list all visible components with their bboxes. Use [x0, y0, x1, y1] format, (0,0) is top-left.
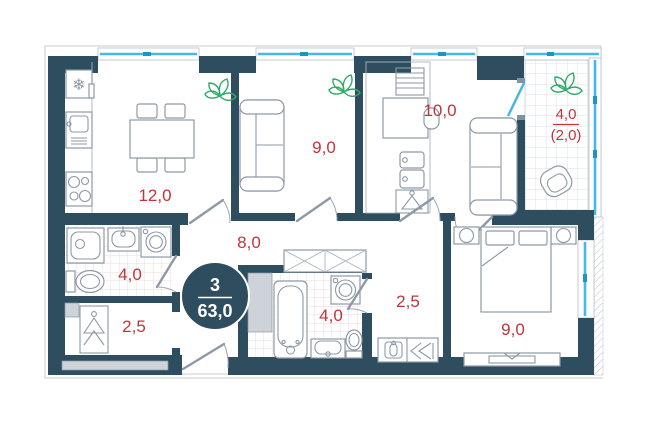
fridge-snowflake-icon: ❄: [72, 75, 85, 94]
wardrobe-hanger-icon: [80, 306, 108, 353]
toilet: [66, 271, 104, 293]
double-bed: [481, 227, 551, 312]
washing-machine: [141, 227, 171, 257]
toilet-2: [346, 330, 362, 358]
hall-closet: [284, 250, 366, 272]
floorplan-image: ❄ 12,0 9,0: [0, 0, 652, 425]
shaft-niche: [248, 273, 272, 332]
badge-total-area: 63,0: [197, 301, 232, 321]
bathtub: [274, 281, 307, 358]
area-label-bedroom: 9,0: [501, 320, 525, 339]
sofa: [240, 100, 284, 191]
area-label-kitchen: 12,0: [138, 186, 171, 205]
nightstand-left: [454, 227, 479, 244]
hanger-icon: [396, 190, 428, 213]
exterior-hatch-band: [594, 217, 603, 375]
hall-right: 2,5: [378, 292, 438, 362]
dresser: [464, 353, 560, 366]
shower: [67, 228, 104, 263]
area-label-balcony: 4,0: [556, 106, 577, 123]
room-living: 9,0: [240, 75, 360, 221]
washbasin-2: [311, 339, 345, 358]
wardrobe-room: 2,5: [65, 303, 146, 353]
washbasin: [108, 226, 139, 251]
stove: [66, 172, 92, 206]
area-label-hall-right: 2,5: [396, 292, 420, 311]
room-top: 10,0: [366, 62, 525, 221]
summary-badge: 3 63,0: [181, 262, 249, 330]
drawers: [400, 152, 424, 188]
badge-rooms-count: 3: [210, 275, 220, 295]
wall-niche: [62, 361, 168, 370]
bedroom: 9,0: [454, 227, 576, 366]
dining-table: [130, 104, 194, 172]
area-label-living: 9,0: [312, 138, 336, 157]
area-label-hallway: 8,0: [237, 233, 261, 252]
balcony-door: [508, 78, 525, 120]
area-label-room-top: 10,0: [423, 101, 456, 120]
hall-cabinet: [378, 338, 438, 362]
entrance-door: [182, 344, 228, 374]
kitchen-door: [190, 200, 230, 223]
area-label-bathroom-left: 4,0: [118, 265, 142, 284]
area-label-balcony-reduced: (2,0): [551, 127, 582, 144]
living-room-door: [297, 198, 337, 221]
area-label-wardrobe: 2,5: [122, 317, 146, 336]
room-kitchen-living: ❄ 12,0: [66, 62, 236, 223]
washing-machine-2: [331, 276, 360, 304]
sofa-2: [470, 118, 517, 215]
kitchen-sink: [66, 112, 92, 148]
area-label-bathroom-center: 4,0: [319, 306, 343, 325]
nightstand-right: [551, 227, 576, 244]
